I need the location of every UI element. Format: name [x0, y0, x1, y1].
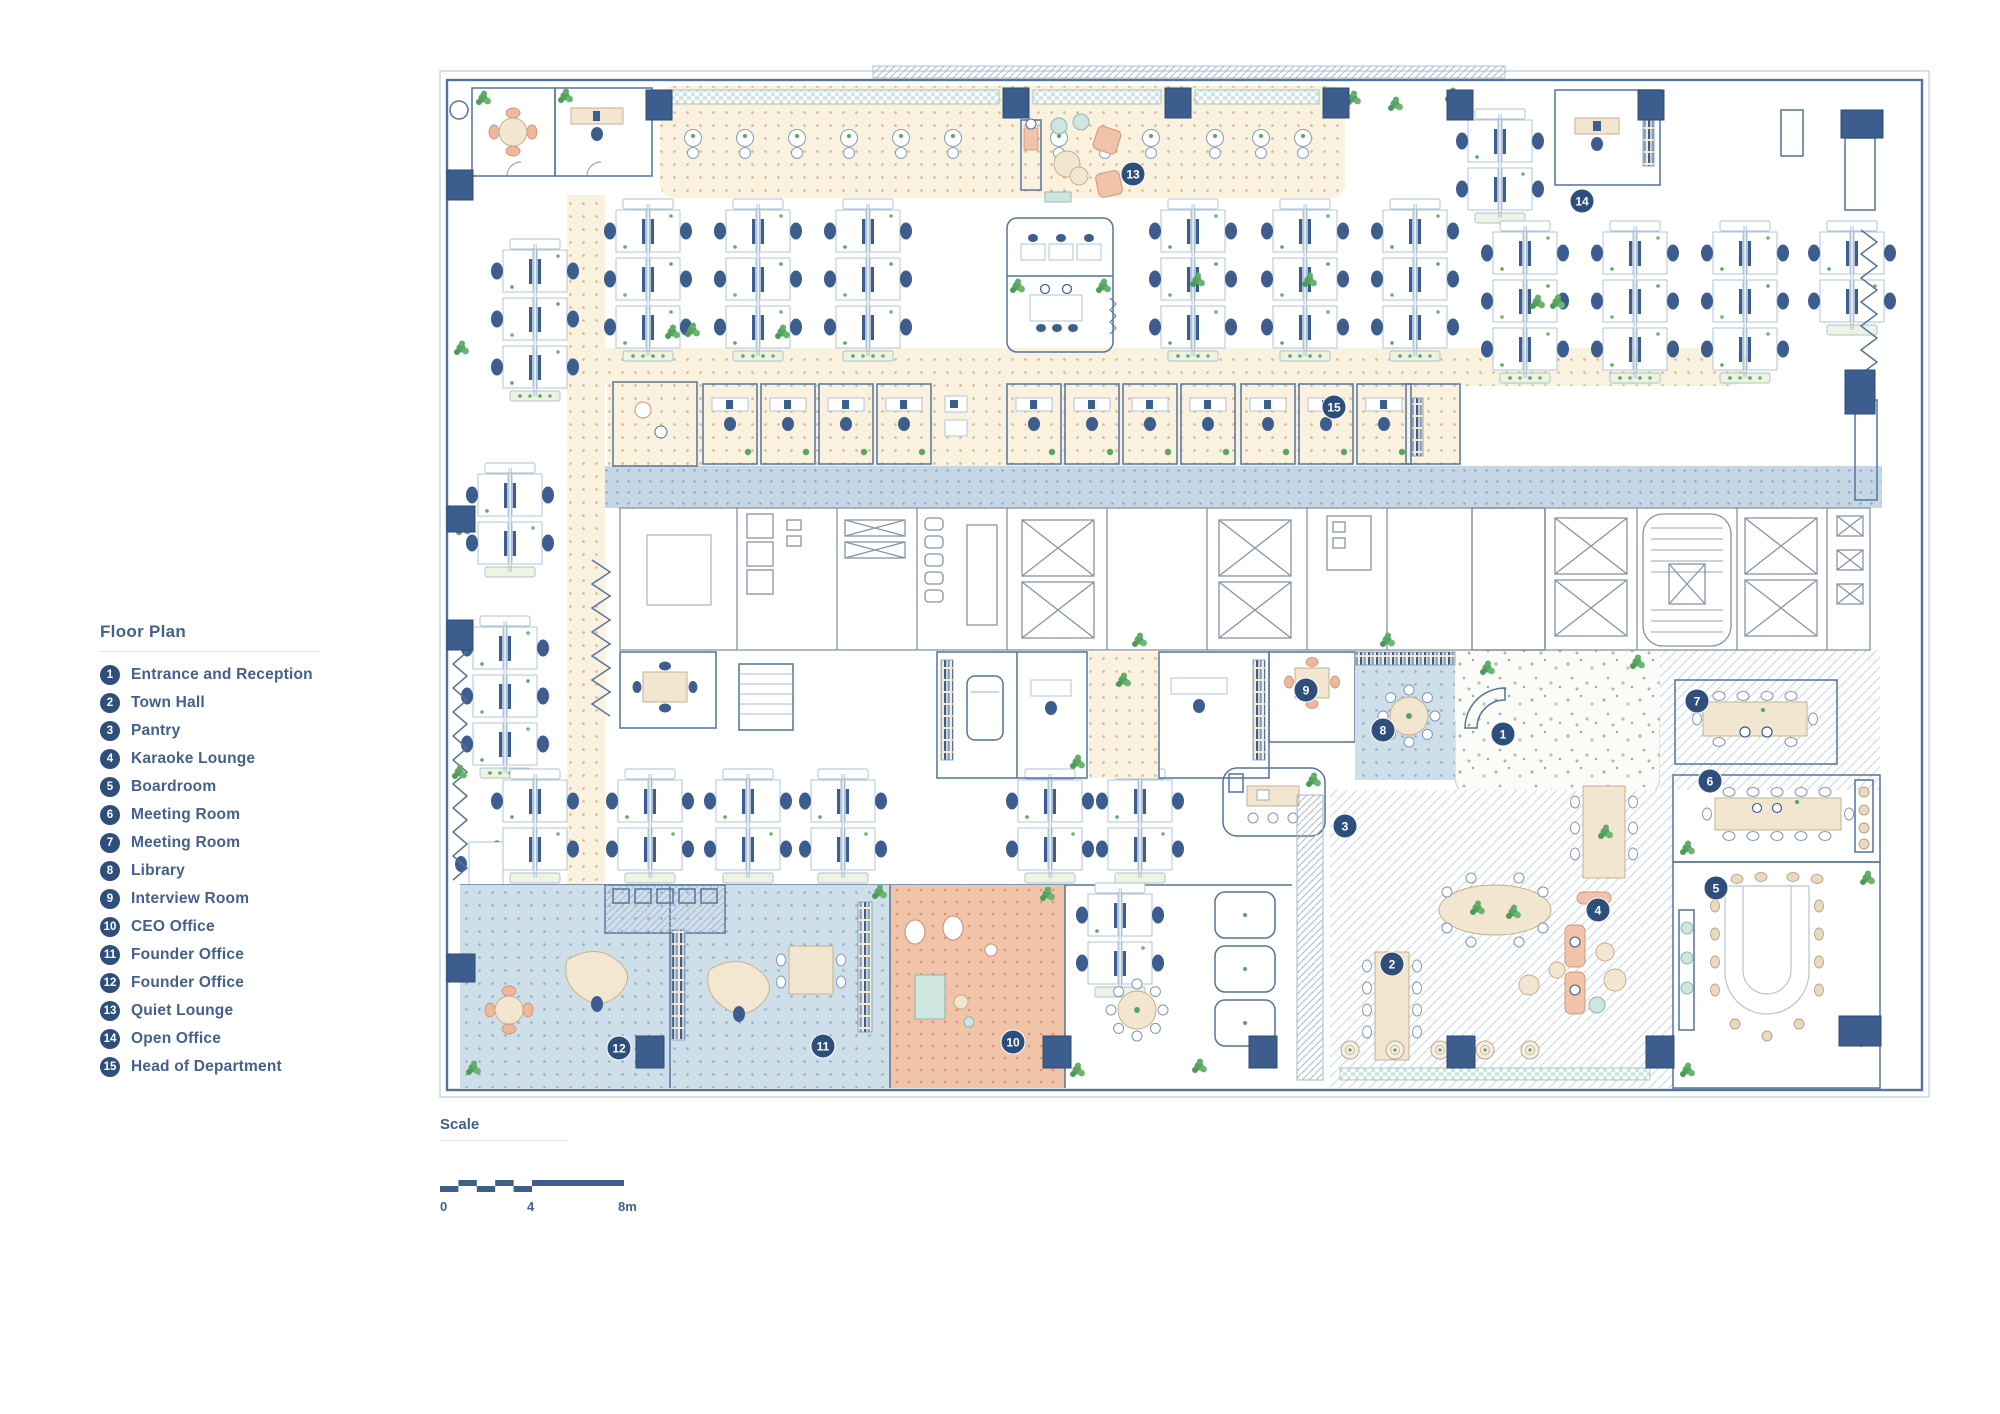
room-marker-4: 4Karaoke Lounge — [1586, 898, 1610, 922]
svg-text:2: 2 — [1389, 957, 1396, 971]
legend-item: 12 Founder Office — [100, 973, 370, 993]
legend-item-number: 15 — [100, 1057, 120, 1077]
legend-item-number: 6 — [100, 805, 120, 825]
legend-item: 2 Town Hall — [100, 693, 370, 713]
room-marker-15: 15Head of Department — [1322, 395, 1346, 419]
legend-item: 15 Head of Department — [100, 1057, 370, 1077]
legend-item-number: 13 — [100, 1001, 120, 1021]
legend-item-number: 7 — [100, 833, 120, 853]
svg-text:5: 5 — [1713, 881, 1720, 895]
svg-text:7: 7 — [1694, 694, 1701, 708]
legend-item: 11 Founder Office — [100, 945, 370, 965]
legend-item-number: 10 — [100, 917, 120, 937]
svg-text:14: 14 — [1575, 194, 1589, 208]
legend-list: 1 Entrance and Reception 2 Town Hall 3 P… — [100, 665, 370, 1077]
legend-item: 6 Meeting Room — [100, 805, 370, 825]
svg-text:8: 8 — [1380, 723, 1387, 737]
room-marker-1: 1Entrance and Reception — [1491, 722, 1515, 746]
scale-bar: 0 4 8m — [440, 1177, 660, 1217]
top-left-meeting-rooms — [450, 88, 652, 176]
room-marker-7: 7Meeting Room — [1685, 689, 1709, 713]
legend-item-label: Library — [131, 862, 185, 880]
room-marker-10: 10CEO Office — [1001, 1030, 1025, 1054]
bottom-offices — [460, 883, 1292, 1088]
room-marker-11: 11Founder Office — [811, 1034, 835, 1058]
legend: Floor Plan 1 Entrance and Reception 2 To… — [100, 622, 370, 1085]
svg-text:6: 6 — [1707, 774, 1714, 788]
room-marker-9: 9Interview Room — [1294, 678, 1318, 702]
svg-text:9: 9 — [1303, 683, 1310, 697]
svg-text:12: 12 — [612, 1041, 626, 1055]
stair-icon — [629, 520, 697, 568]
legend-item: 7 Meeting Room — [100, 833, 370, 853]
legend-item-label: Founder Office — [131, 974, 244, 992]
room-marker-6: 6Meeting Room — [1698, 769, 1722, 793]
legend-item-number: 4 — [100, 749, 120, 769]
legend-item-label: Pantry — [131, 722, 180, 740]
legend-item-label: Quiet Lounge — [131, 1002, 233, 1020]
legend-item-number: 12 — [100, 973, 120, 993]
core-services — [620, 508, 1870, 650]
legend-item-number: 2 — [100, 693, 120, 713]
legend-item: 5 Boardroom — [100, 777, 370, 797]
legend-item-label: CEO Office — [131, 918, 215, 936]
svg-text:10: 10 — [1006, 1035, 1020, 1049]
svg-text:1: 1 — [1500, 727, 1507, 741]
scale-bar-graphic — [440, 1177, 640, 1195]
legend-item-label: Head of Department — [131, 1058, 282, 1076]
legend-title: Floor Plan — [100, 622, 320, 652]
legend-item-number: 1 — [100, 665, 120, 685]
legend-item-number: 11 — [100, 945, 120, 965]
legend-item-number: 9 — [100, 889, 120, 909]
legend-item: 13 Quiet Lounge — [100, 1001, 370, 1021]
legend-item-label: Open Office — [131, 1030, 221, 1048]
legend-item: 4 Karaoke Lounge — [100, 749, 370, 769]
legend-item: 9 Interview Room — [100, 889, 370, 909]
legend-item-label: Meeting Room — [131, 806, 240, 824]
legend-item-number: 8 — [100, 861, 120, 881]
legend-item-label: Meeting Room — [131, 834, 240, 852]
legend-item-label: Town Hall — [131, 694, 205, 712]
scale-tick-8m: 8m — [618, 1199, 637, 1214]
room-marker-3: 3Pantry — [1333, 814, 1357, 838]
legend-item-number: 3 — [100, 721, 120, 741]
legend-item-label: Boardroom — [131, 778, 216, 796]
room-marker-8: 8Library — [1371, 718, 1395, 742]
phone-room-top-right — [1555, 90, 1803, 185]
scale-widget: Scale 0 4 8m — [440, 1116, 660, 1217]
legend-item: 3 Pantry — [100, 721, 370, 741]
legend-item-number: 5 — [100, 777, 120, 797]
legend-item-label: Interview Room — [131, 890, 249, 908]
room-marker-13: 13Quiet Lounge — [1121, 162, 1145, 186]
legend-item-label: Karaoke Lounge — [131, 750, 255, 768]
svg-text:15: 15 — [1327, 400, 1341, 414]
svg-text:3: 3 — [1342, 819, 1349, 833]
legend-item: 10 CEO Office — [100, 917, 370, 937]
meeting-pod — [1007, 218, 1116, 352]
legend-item: 8 Library — [100, 861, 370, 881]
floor-plan-page: { "legend": { "title": "Floor Plan", "it… — [0, 0, 2000, 1414]
scale-tick-4: 4 — [527, 1199, 534, 1214]
legend-item: 14 Open Office — [100, 1029, 370, 1049]
room-marker-12: 12Founder Office — [607, 1036, 631, 1060]
scale-tick-0: 0 — [440, 1199, 447, 1214]
legend-item-label: Entrance and Reception — [131, 666, 313, 684]
svg-text:4: 4 — [1595, 903, 1602, 917]
room-marker-5: 5Boardroom — [1704, 876, 1728, 900]
floor-plan-svg: 1Entrance and Reception2Town Hall3Pantry… — [437, 62, 1932, 1102]
room-marker-2: 2Town Hall — [1380, 952, 1404, 976]
legend-item-label: Founder Office — [131, 946, 244, 964]
floor-plan-drawing: 1Entrance and Reception2Town Hall3Pantry… — [437, 62, 1932, 1102]
legend-item-number: 14 — [100, 1029, 120, 1049]
boardroom-5 — [1673, 862, 1880, 1088]
svg-text:13: 13 — [1126, 167, 1140, 181]
interview-library-band — [620, 652, 1455, 780]
room-marker-14: 14Open Office — [1570, 189, 1594, 213]
scale-title: Scale — [440, 1116, 568, 1141]
legend-item: 1 Entrance and Reception — [100, 665, 370, 685]
svg-text:11: 11 — [817, 1039, 830, 1053]
